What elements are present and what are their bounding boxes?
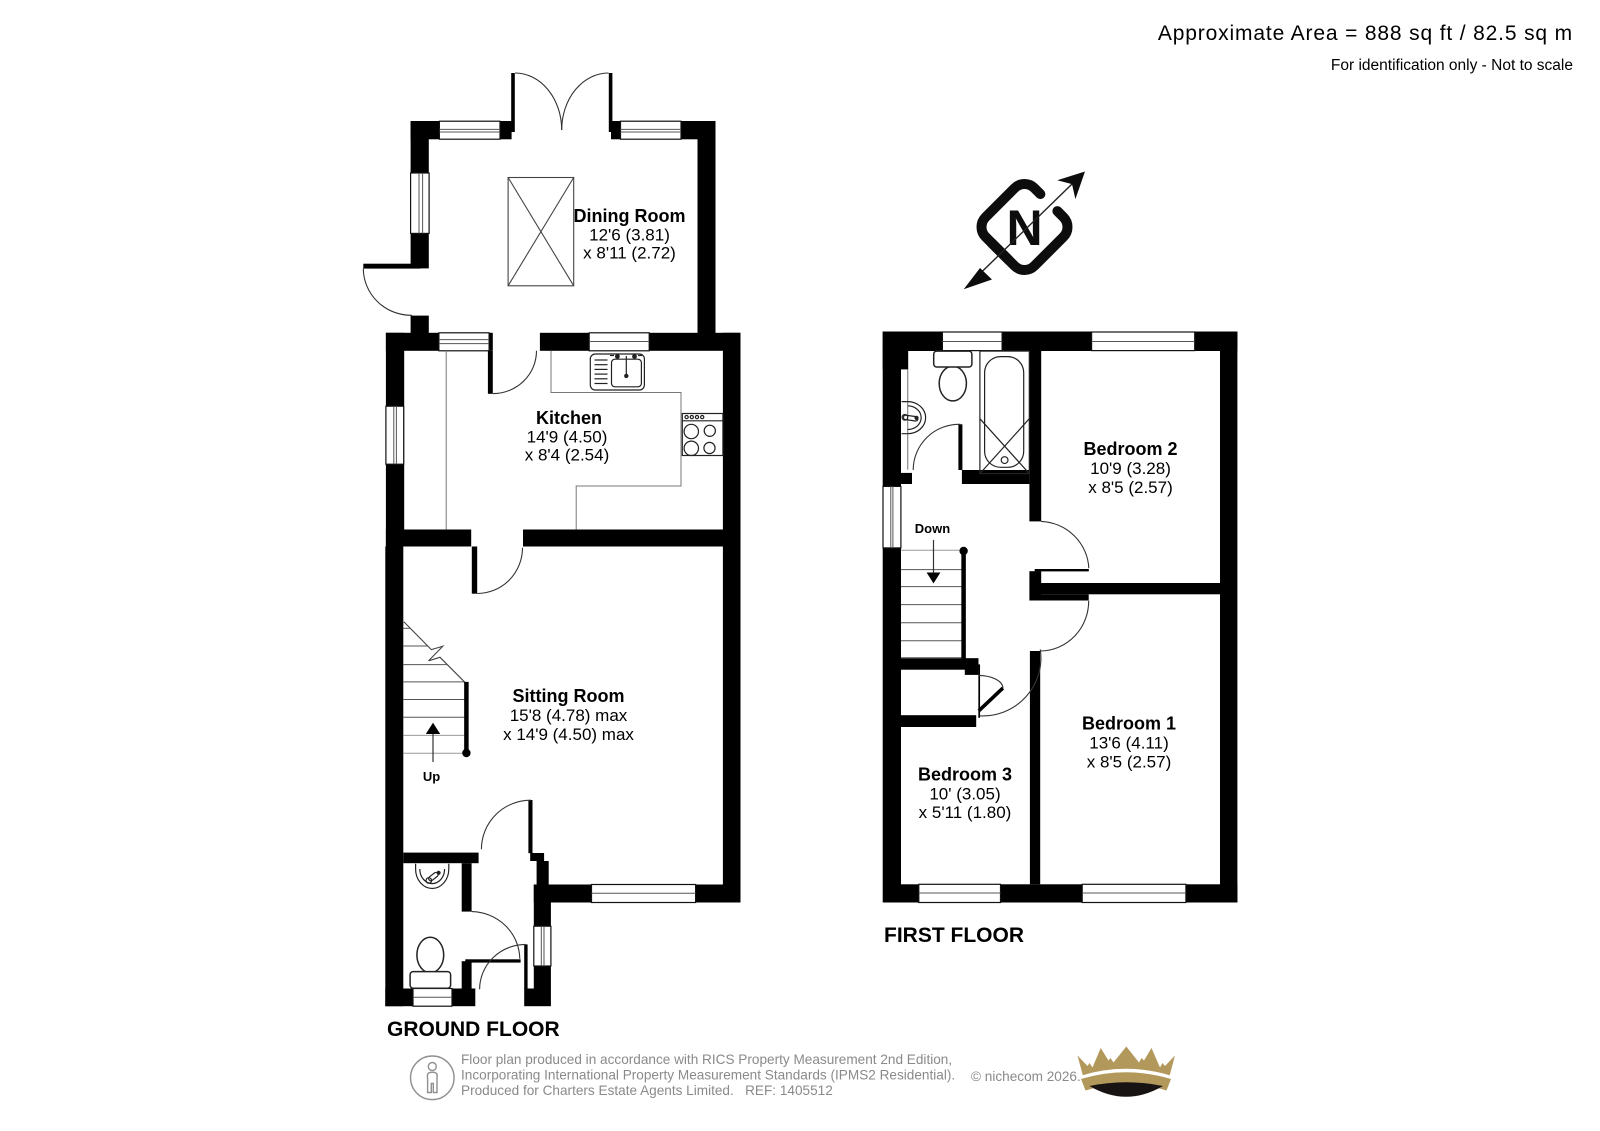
svg-text:14'9 (4.50): 14'9 (4.50) [527, 428, 608, 447]
svg-text:x 8'5 (2.57): x 8'5 (2.57) [1087, 753, 1172, 772]
svg-text:x 8'4 (2.54): x 8'4 (2.54) [525, 446, 610, 465]
svg-text:Sitting Room: Sitting Room [513, 686, 625, 706]
svg-text:Produced for Charters Estate A: Produced for Charters Estate Agents Limi… [461, 1083, 833, 1098]
svg-text:© nichecom 2026.: © nichecom 2026. [971, 1069, 1081, 1084]
svg-text:Bedroom 1: Bedroom 1 [1082, 714, 1176, 734]
svg-text:12'6 (3.81): 12'6 (3.81) [589, 226, 670, 245]
svg-text:15'8 (4.78) max: 15'8 (4.78) max [510, 706, 628, 725]
svg-text:Bedroom 3: Bedroom 3 [918, 765, 1012, 785]
svg-text:x 8'5 (2.57): x 8'5 (2.57) [1088, 478, 1173, 497]
svg-text:Approximate Area = 888 sq ft /: Approximate Area = 888 sq ft / 82.5 sq m [1158, 22, 1573, 45]
svg-text:Up: Up [423, 769, 440, 784]
svg-text:x 14'9 (4.50) max: x 14'9 (4.50) max [503, 725, 634, 744]
svg-text:10'9 (3.28): 10'9 (3.28) [1090, 459, 1171, 478]
svg-text:Dining Room: Dining Room [574, 206, 686, 226]
svg-text:Floor plan produced in accorda: Floor plan produced in accordance with R… [461, 1052, 952, 1067]
svg-text:For identification only - Not: For identification only - Not to scale [1331, 57, 1573, 74]
svg-text:Kitchen: Kitchen [536, 408, 602, 428]
svg-text:GROUND FLOOR: GROUND FLOOR [387, 1018, 560, 1041]
svg-text:13'6 (4.11): 13'6 (4.11) [1089, 734, 1168, 753]
svg-text:x 8'11 (2.72): x 8'11 (2.72) [583, 244, 676, 263]
svg-text:10' (3.05): 10' (3.05) [929, 785, 1000, 804]
svg-text:Bedroom 2: Bedroom 2 [1083, 439, 1177, 459]
svg-text:Incorporating International Pr: Incorporating International Property Mea… [461, 1068, 955, 1083]
svg-text:N: N [1006, 200, 1042, 256]
svg-text:x 5'11 (1.80): x 5'11 (1.80) [919, 803, 1012, 822]
svg-text:Down: Down [915, 521, 950, 536]
svg-text:FIRST FLOOR: FIRST FLOOR [884, 924, 1024, 947]
